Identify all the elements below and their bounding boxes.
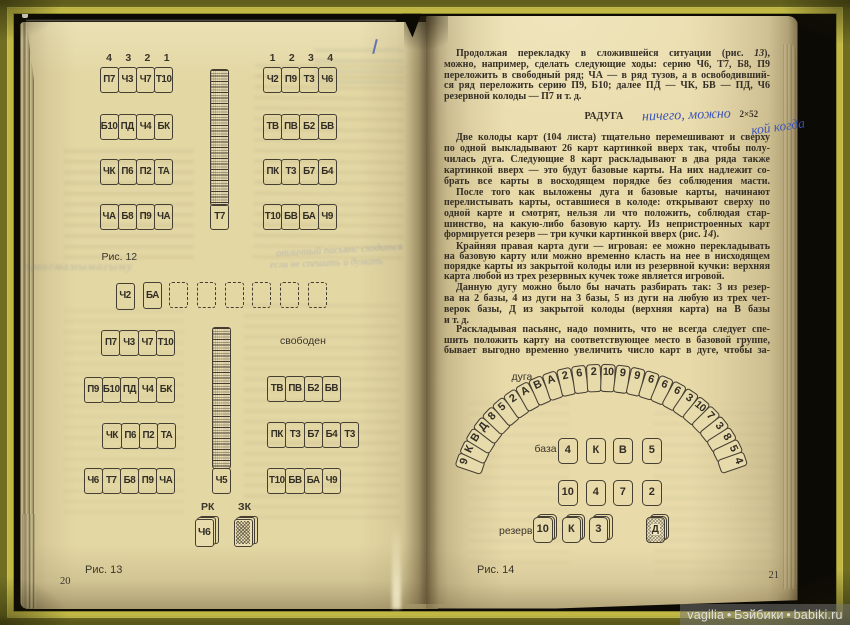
svg-text:2: 2 — [590, 365, 597, 377]
svg-text:10: 10 — [602, 365, 614, 377]
